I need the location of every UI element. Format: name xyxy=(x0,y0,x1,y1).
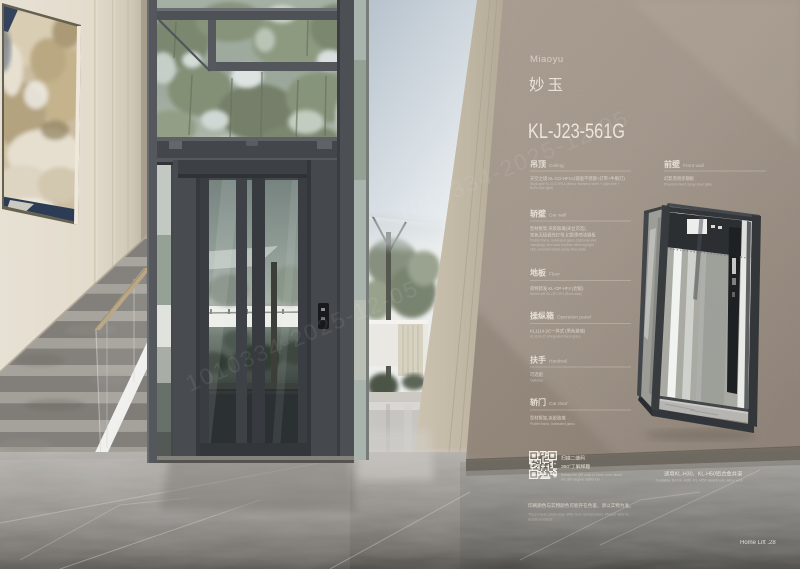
svg-text:Bull's Eye light): Bull's Eye light) xyxy=(530,186,553,190)
svg-text:适用KL-H30、KL-H50铝合金井道: 适用KL-H30、KL-H50铝合金井道 xyxy=(664,470,743,478)
svg-text:Series set KL-OP-HF4 (Rock sla: Series set KL-OP-HF4 (Rock slab) xyxy=(530,292,582,296)
svg-text:360°了解梯趣: 360°了解梯趣 xyxy=(561,463,590,470)
svg-text:They'd best colors may differ: They'd best colors may differ from actua… xyxy=(528,513,629,517)
svg-text:Phantom black spray steel plat: Phantom black spray steel plate xyxy=(664,183,712,187)
svg-text:简特新发 KL-OP-HF4 (岩板): 简特新发 KL-OP-HF4 (岩板) xyxy=(530,285,584,292)
svg-text:双色无极调光灯带,幻影黑喷涂钢板: 双色无极调光灯带,幻影黑喷涂钢板 xyxy=(530,232,596,239)
svg-text:Miaoyu: Miaoyu xyxy=(530,54,564,65)
svg-text:Suitable for KL-H30, KL-H50 al: Suitable for KL-H30, KL-H50 aluminum all… xyxy=(656,478,743,483)
svg-text:可选配: 可选配 xyxy=(530,371,544,378)
svg-text:Profile frame, laminated glass: Profile frame, laminated glass (Optional… xyxy=(530,239,597,243)
svg-text:印刷颜色与实物颜色可能存在色差，请以实物为准。: 印刷颜色与实物颜色可能存在色差，请以实物为准。 xyxy=(528,502,634,509)
svg-text:妙玉: 妙玉 xyxy=(529,76,566,94)
svg-text:幻影黑喷涂钢板: 幻影黑喷涂钢板 xyxy=(664,175,695,182)
svg-text:型材框架,夹胶玻璃: 型材框架,夹胶玻璃 xyxy=(530,415,566,422)
svg-text:the 360-degree ladder fun: the 360-degree ladder fun xyxy=(561,478,600,482)
svg-text:扫描二维码: 扫描二维码 xyxy=(561,455,585,462)
svg-text:KL1114-2C integrated black gla: KL1114-2C integrated black glass xyxy=(530,335,581,339)
svg-text:Home Lift .28: Home Lift .28 xyxy=(740,540,776,546)
svg-text:clamping), two-color endless d: clamping), two-color endless dimming lig… xyxy=(530,243,594,247)
svg-text:型材框架,夹胶玻璃(夹丝可选),: 型材框架,夹胶玻璃(夹丝可选), xyxy=(530,225,587,232)
svg-text:Sweep the QR code to know more: Sweep the QR code to know more about xyxy=(561,473,622,477)
svg-text:strip, phantom black spray ste: strip, phantom black spray steel plate xyxy=(530,248,586,252)
svg-text:KL1114-2C一体式 (黑色玻璃): KL1114-2C一体式 (黑色玻璃) xyxy=(530,328,586,335)
svg-text:Profile frame, laminated glass: Profile frame, laminated glass xyxy=(530,422,575,426)
svg-text:actual products.: actual products. xyxy=(528,518,553,522)
svg-text:Optional: Optional xyxy=(530,379,543,383)
